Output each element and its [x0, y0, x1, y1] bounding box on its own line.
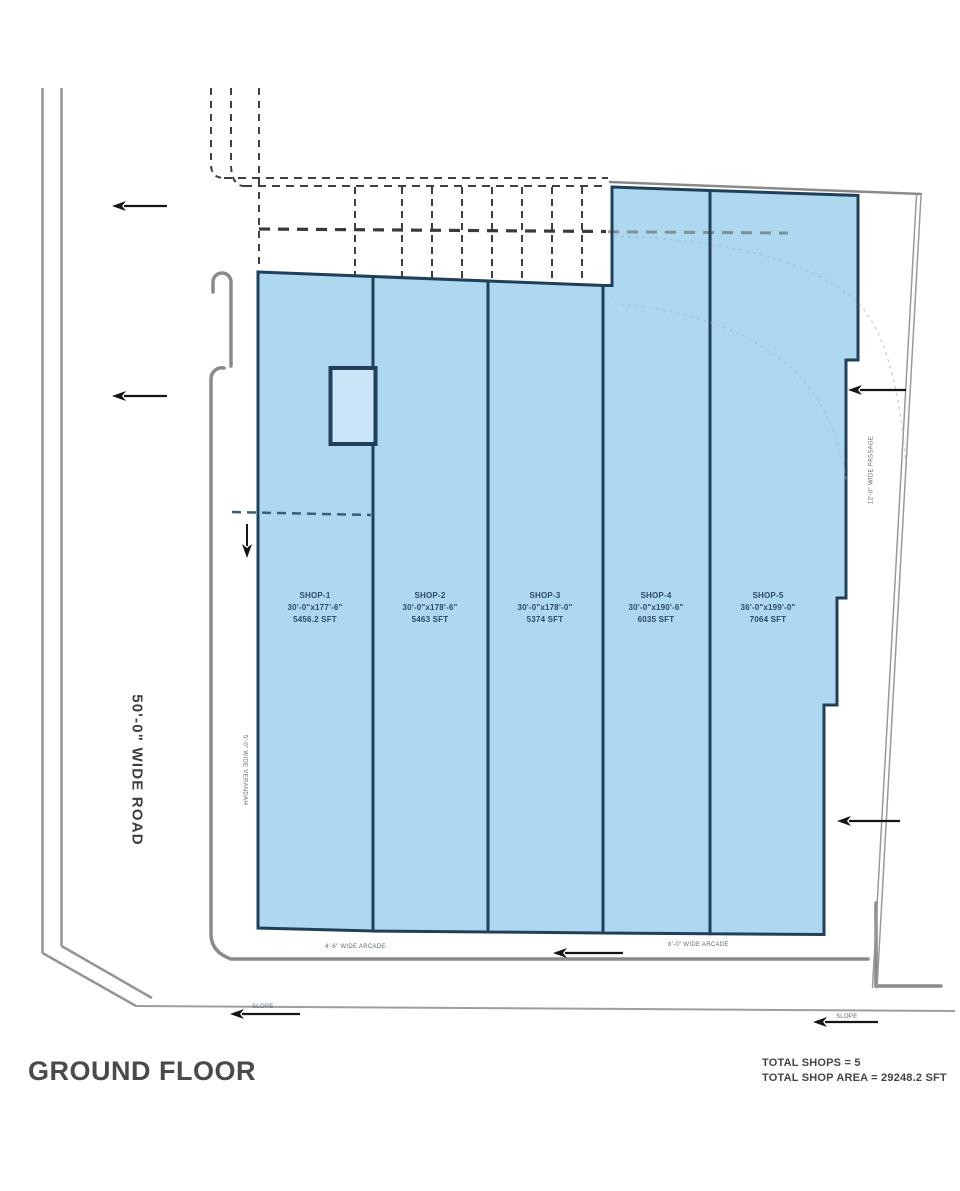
- slope-label-left: SLOPE: [252, 1004, 274, 1011]
- shops-block: [258, 187, 858, 935]
- shop-3-label: SHOP-3 30'-0"x178'-0" 5374 SFT: [517, 590, 572, 626]
- road-label: 50'-0" WIDE ROAD: [129, 694, 146, 846]
- shop-2-label: SHOP-2 30'-0"x178'-6" 5463 SFT: [402, 590, 457, 626]
- floor-plan-canvas: SHOP-1 30'-0"x177'-6" 5456.2 SFT SHOP-2 …: [0, 0, 960, 1191]
- page-title: GROUND FLOOR: [28, 1056, 256, 1087]
- arrow-road-upper: [112, 201, 167, 211]
- total-shops-text: TOTAL SHOPS = 5: [762, 1056, 947, 1071]
- arcade-label-left: 4'-6" WIDE ARCADE: [325, 944, 386, 951]
- shop-dimensions: 30'-0"x178'-0": [517, 602, 572, 614]
- shop-area: 5463 SFT: [402, 614, 457, 626]
- shop-dimensions: 30'-0"x177'-6": [287, 602, 342, 614]
- arrow-right-lower: [837, 816, 900, 826]
- shop-name: SHOP-3: [517, 590, 572, 602]
- arrow-right-upper: [848, 385, 906, 395]
- shop-dimensions: 36'-0"x199'-0": [740, 602, 795, 614]
- shop-area: 5456.2 SFT: [287, 614, 342, 626]
- shop-4-label: SHOP-4 30'-0"x190'-6" 6035 SFT: [628, 590, 683, 626]
- arrow-verandah-down: [242, 524, 252, 558]
- arcade-label-right: 8'-0" WIDE ARCADE: [668, 942, 729, 949]
- floor-plan-drawing: [0, 0, 960, 1191]
- stair-block: [331, 368, 376, 444]
- shop-name: SHOP-5: [740, 590, 795, 602]
- shop-area: 6035 SFT: [628, 614, 683, 626]
- shop-dimensions: 30'-0"x178'-6": [402, 602, 457, 614]
- shop-4-region: [603, 187, 710, 934]
- shop-1-label: SHOP-1 30'-0"x177'-6" 5456.2 SFT: [287, 590, 342, 626]
- shop-5-region: [710, 191, 858, 935]
- passage-label: 12'-0" WIDE PASSAGE: [869, 436, 876, 504]
- shop-name: SHOP-2: [402, 590, 457, 602]
- slope-label-right: SLOPE: [836, 1014, 858, 1021]
- shop-5-label: SHOP-5 36'-0"x199'-0" 7064 SFT: [740, 590, 795, 626]
- shop-area: 5374 SFT: [517, 614, 572, 626]
- shop-name: SHOP-4: [628, 590, 683, 602]
- shop-area: 7064 SFT: [740, 614, 795, 626]
- totals-block: TOTAL SHOPS = 5 TOTAL SHOP AREA = 29248.…: [762, 1056, 947, 1086]
- parking-grid-dashed: [211, 88, 608, 281]
- shop-dimensions: 30'-0"x190'-6": [628, 602, 683, 614]
- arrow-arcade-bottom: [553, 948, 623, 958]
- total-area-text: TOTAL SHOP AREA = 29248.2 SFT: [762, 1071, 947, 1086]
- verandah-label: 5'-0" WIDE VERANDAH: [241, 735, 248, 805]
- arrow-road-lower: [112, 391, 167, 401]
- shop-name: SHOP-1: [287, 590, 342, 602]
